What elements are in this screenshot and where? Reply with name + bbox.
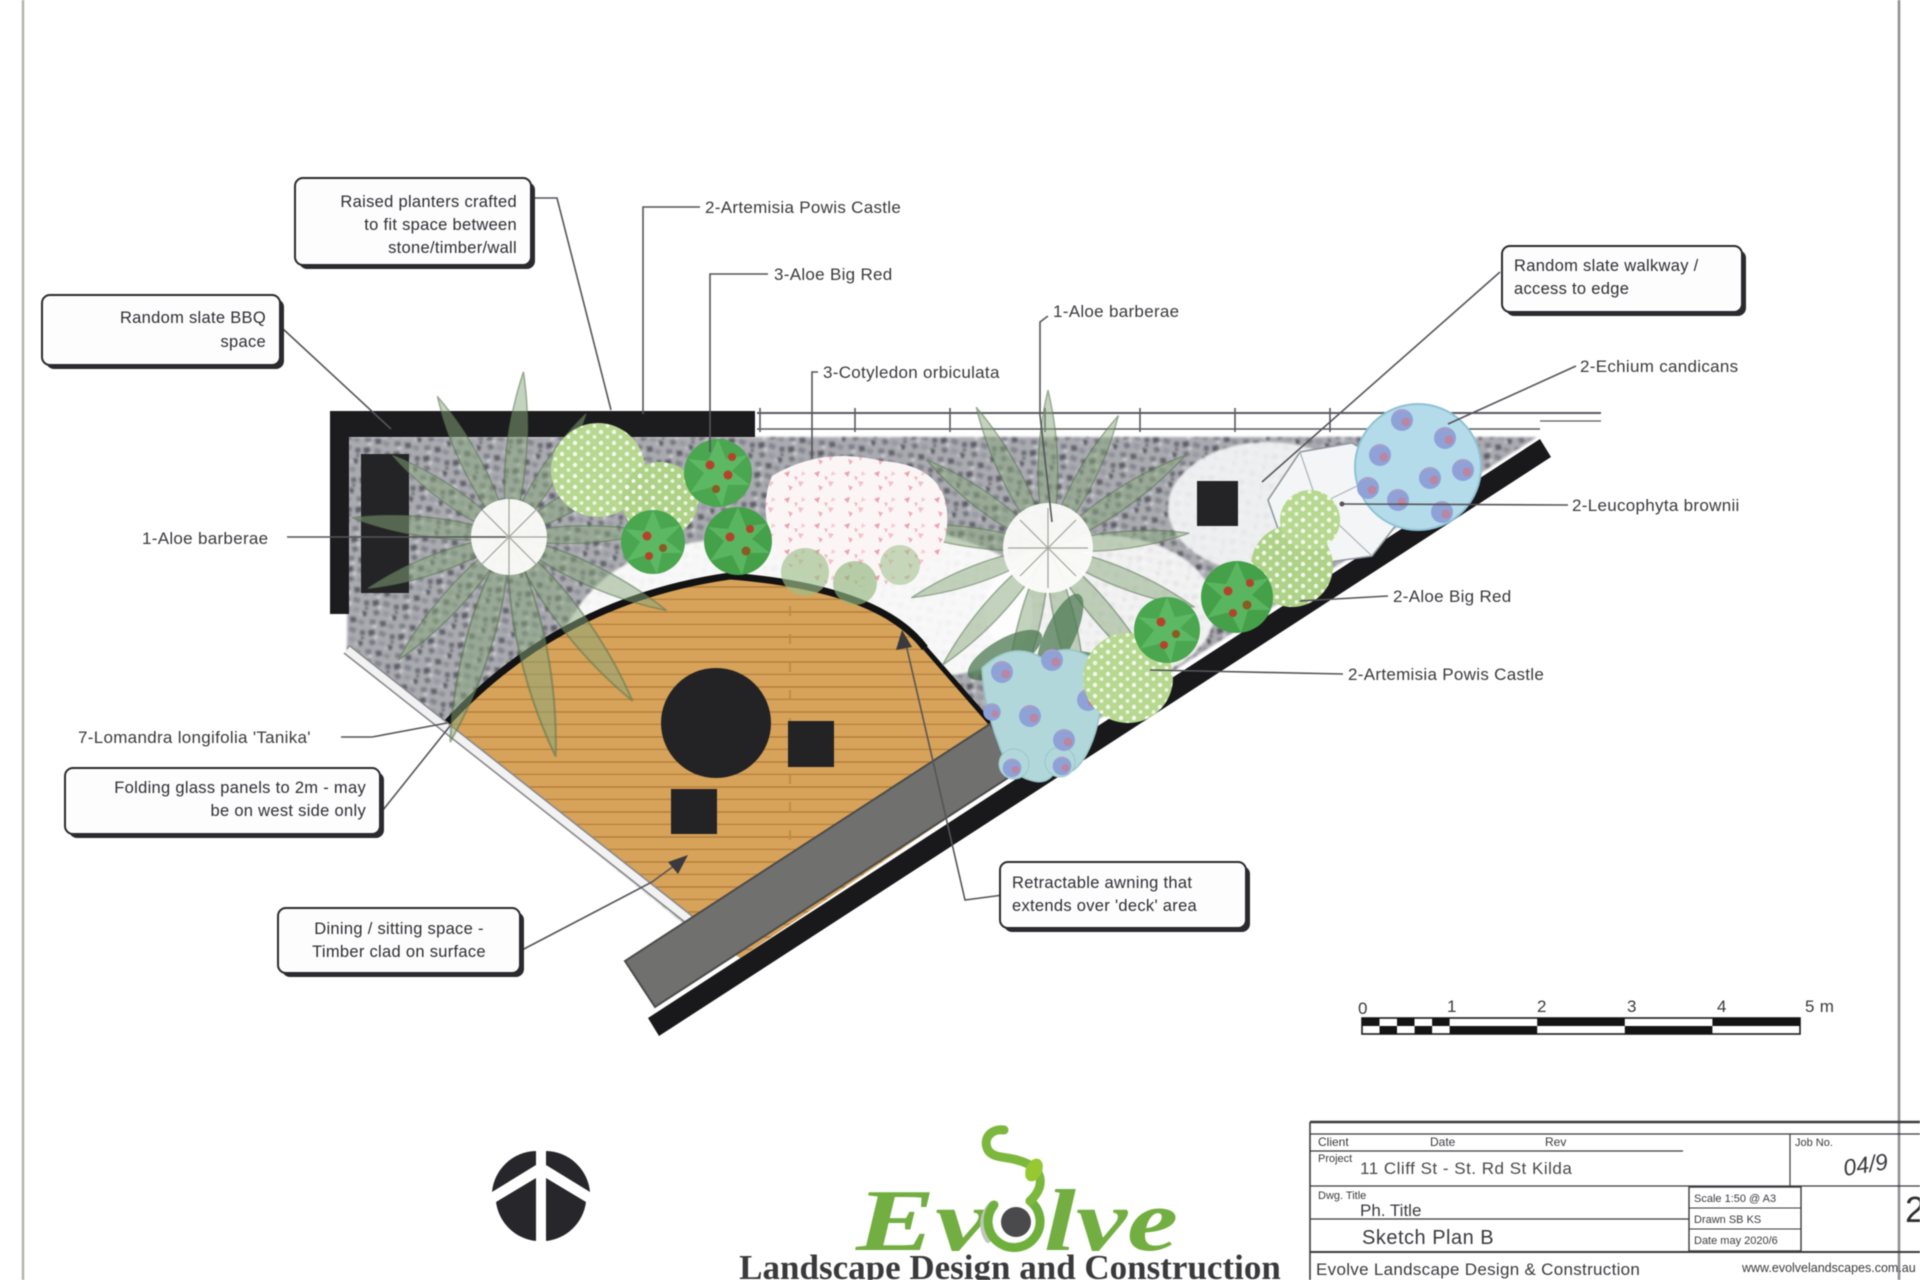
svg-text:Random slate BBQ: Random slate BBQ [120,309,266,327]
svg-text:Landscape Design and Construct: Landscape Design and Construction [739,1248,1281,1280]
svg-text:2-Artemisia Powis Castle: 2-Artemisia Powis Castle [705,198,901,217]
svg-text:Scale 1:50 @ A3: Scale 1:50 @ A3 [1694,1193,1776,1205]
svg-text:extends over 'deck' area: extends over 'deck' area [1012,897,1198,915]
svg-text:3: 3 [1627,997,1637,1016]
svg-text:11 Cliff St - St. Rd St Kilda: 11 Cliff St - St. Rd St Kilda [1360,1159,1572,1178]
svg-text:Sketch Plan B: Sketch Plan B [1362,1227,1494,1249]
svg-text:space: space [220,333,266,351]
svg-text:Project: Project [1318,1153,1352,1165]
svg-text:stone/timber/wall: stone/timber/wall [388,239,517,257]
svg-text:Timber clad on surface: Timber clad on surface [312,943,486,961]
svg-text:Raised planters crafted: Raised planters crafted [340,193,517,211]
svg-text:be on west side only: be on west side only [210,802,366,820]
svg-text:Evolve Landscape Design & Cons: Evolve Landscape Design & Construction [1316,1260,1640,1279]
svg-text:Random slate walkway /: Random slate walkway / [1514,257,1699,275]
svg-text:Retractable awning that: Retractable awning that [1012,874,1192,892]
svg-text:1: 1 [1447,997,1457,1016]
svg-text:Folding glass panels to 2m - m: Folding glass panels to 2m - may [114,779,366,797]
svg-text:04/9: 04/9 [1841,1148,1889,1181]
svg-text:2: 2 [1905,1189,1920,1230]
svg-text:3-Cotyledon orbiculata: 3-Cotyledon orbiculata [823,363,1000,382]
svg-text:access to edge: access to edge [1514,280,1629,298]
svg-text:Date may 2020/6: Date may 2020/6 [1694,1235,1778,1247]
svg-text:2-Artemisia Powis Castle: 2-Artemisia Powis Castle [1348,665,1544,684]
svg-text:Drawn SB KS: Drawn SB KS [1694,1214,1761,1226]
svg-text:5 m: 5 m [1805,997,1834,1016]
svg-text:to fit space between: to fit space between [364,216,517,234]
svg-text:Dining / sitting space -: Dining / sitting space - [314,920,484,938]
svg-text:2: 2 [1537,997,1547,1016]
svg-text:3-Aloe Big Red: 3-Aloe Big Red [774,265,893,284]
svg-text:www.evolvelandscapes.com.au: www.evolvelandscapes.com.au [1741,1261,1916,1275]
svg-text:Rev: Rev [1545,1135,1566,1149]
svg-text:4: 4 [1717,997,1727,1016]
svg-text:2-Aloe Big Red: 2-Aloe Big Red [1393,587,1512,606]
svg-text:7-Lomandra longifolia 'Tanika': 7-Lomandra longifolia 'Tanika' [78,728,311,747]
svg-text:Client: Client [1318,1135,1349,1149]
svg-text:1-Aloe barberae: 1-Aloe barberae [1053,302,1179,321]
svg-text:1-Aloe barberae: 1-Aloe barberae [142,529,268,548]
svg-text:Ph. Title: Ph. Title [1360,1201,1421,1220]
svg-text:2-Echium candicans: 2-Echium candicans [1580,357,1738,376]
svg-text:Job No.: Job No. [1795,1137,1833,1149]
svg-text:2-Leucophyta brownii: 2-Leucophyta brownii [1572,496,1740,515]
svg-text:0: 0 [1358,999,1368,1018]
svg-text:Date: Date [1430,1135,1456,1149]
